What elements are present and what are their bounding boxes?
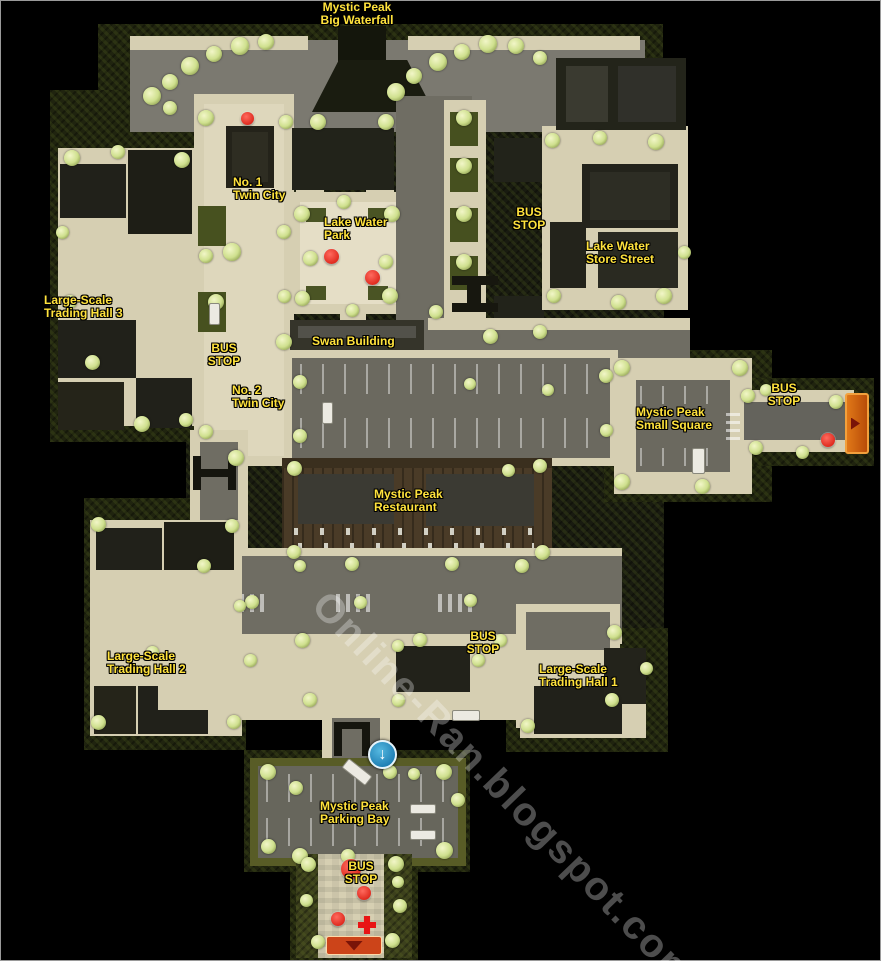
tree	[533, 325, 547, 339]
tree	[56, 226, 69, 239]
label-no2-twin-city: No. 2 Twin City	[232, 384, 284, 410]
tree	[732, 360, 748, 376]
tree	[502, 464, 515, 477]
portal-down-arrow-icon: ↓	[368, 740, 397, 769]
tree	[451, 793, 465, 807]
tree	[385, 933, 400, 948]
tree	[545, 133, 560, 148]
tree	[408, 768, 420, 780]
vehicle	[322, 402, 333, 424]
label-small-square: Mystic Peak Small Square	[636, 406, 712, 432]
tree	[429, 53, 447, 71]
tree	[295, 633, 310, 648]
label-bus-stop-center: BUS STOP	[467, 630, 499, 656]
tree	[605, 693, 619, 707]
tree	[392, 640, 404, 652]
vehicle	[692, 448, 705, 474]
label-big-waterfall: Mystic Peak Big Waterfall	[321, 1, 394, 27]
tree	[392, 694, 405, 707]
map-marker-dot	[241, 112, 254, 125]
label-trading-hall-1: Large-Scale Trading Hall 1	[539, 663, 618, 689]
portal-south	[326, 936, 382, 955]
tree	[295, 291, 310, 306]
tree	[378, 114, 394, 130]
tree	[294, 560, 306, 572]
tree	[197, 559, 211, 573]
tree	[392, 876, 404, 888]
tree	[464, 378, 476, 390]
label-bus-stop-right: BUS STOP	[768, 382, 800, 408]
tree	[337, 195, 351, 209]
tree	[231, 37, 249, 55]
hall3-bldg-1	[60, 164, 126, 218]
portal-east	[845, 393, 869, 454]
tree	[741, 389, 755, 403]
tree	[600, 424, 613, 437]
label-lake-water-store-street: Lake Water Store Street	[586, 240, 654, 266]
tree	[293, 429, 307, 443]
label-parking-bay: Mystic Peak Parking Bay	[320, 800, 389, 826]
tree	[163, 101, 177, 115]
label-swan-building: Swan Building	[312, 335, 395, 348]
tree	[206, 46, 222, 62]
tree	[678, 246, 691, 259]
tree	[311, 935, 325, 949]
vehicle	[410, 804, 436, 814]
tree	[225, 519, 239, 533]
store-bldg-top-roof2	[618, 66, 676, 122]
tree	[287, 461, 302, 476]
tree	[64, 150, 80, 166]
tree	[300, 894, 313, 907]
tree	[303, 693, 317, 707]
vehicle	[410, 830, 436, 840]
map-marker-dot	[357, 886, 371, 900]
tree	[277, 225, 291, 239]
tree	[91, 715, 106, 730]
map-marker-dot	[365, 270, 380, 285]
tree	[533, 51, 547, 65]
tree	[379, 255, 393, 269]
tree	[388, 856, 404, 872]
tree	[260, 764, 276, 780]
label-trading-hall-3: Large-Scale Trading Hall 3	[44, 294, 123, 320]
tree	[749, 441, 763, 455]
tree	[310, 114, 326, 130]
planter-left-1	[198, 206, 226, 246]
tree	[515, 559, 529, 573]
label-restaurant: Mystic Peak Restaurant	[374, 488, 443, 514]
tree	[228, 450, 244, 466]
swan-stalls-1	[300, 364, 600, 394]
tree	[829, 395, 843, 409]
tree	[294, 206, 310, 222]
tree	[456, 110, 472, 126]
square-stalls-2	[640, 448, 726, 466]
tree	[278, 290, 291, 303]
tree	[547, 289, 561, 303]
tree	[521, 719, 535, 733]
bridge-stem	[467, 280, 481, 308]
tree	[406, 68, 422, 84]
tree	[454, 44, 470, 60]
tree	[245, 595, 259, 609]
tree	[134, 416, 150, 432]
square-stalls-1	[640, 386, 726, 404]
swan-stalls-2	[300, 418, 600, 448]
tree	[429, 305, 443, 319]
tree	[303, 251, 318, 266]
vehicle	[209, 303, 220, 325]
tree	[354, 596, 367, 609]
tree	[607, 625, 622, 640]
label-bus-stop-top: BUS STOP	[513, 206, 545, 232]
tree	[143, 87, 161, 105]
tree	[456, 254, 472, 270]
tree	[387, 83, 405, 101]
portal-east-triangle	[851, 418, 860, 430]
tree	[174, 152, 190, 168]
tree	[599, 369, 613, 383]
tree	[796, 446, 809, 459]
tree	[464, 594, 477, 607]
block-dark-1	[292, 128, 394, 190]
tree	[614, 360, 630, 376]
tree	[181, 57, 199, 75]
hall3-bldg-3	[58, 320, 136, 378]
tree	[456, 158, 472, 174]
tree	[199, 425, 213, 439]
tree	[293, 375, 307, 389]
game-map: Online-Ran.blogspot.com ↓Mystic Peak Big…	[0, 0, 881, 961]
tree	[223, 243, 241, 261]
label-bus-stop-left: BUS STOP	[208, 342, 240, 368]
tree	[279, 115, 293, 129]
tree	[382, 288, 398, 304]
square-crosswalk	[726, 408, 740, 440]
label-no1-twin-city: No. 1 Twin City	[233, 176, 285, 202]
tree	[261, 839, 276, 854]
label-bus-stop-bottom: BUS STOP	[345, 860, 377, 886]
hall2-bldg-1	[96, 528, 162, 570]
tree	[695, 479, 710, 494]
portal-south-triangle	[345, 941, 363, 951]
tree	[287, 545, 301, 559]
vehicle	[452, 710, 480, 721]
tree	[611, 295, 626, 310]
tree	[393, 899, 407, 913]
tree	[276, 334, 292, 350]
tree	[346, 304, 359, 317]
tree	[648, 134, 664, 150]
tree	[345, 557, 359, 571]
tree	[179, 413, 193, 427]
tree	[593, 131, 607, 145]
tree	[91, 517, 106, 532]
restaurant-tables-1	[294, 528, 538, 535]
map-marker-dot	[821, 433, 835, 447]
tree	[413, 633, 427, 647]
tree	[445, 557, 459, 571]
tree	[508, 38, 524, 54]
top-plaza-edge-right	[408, 36, 640, 50]
tree	[483, 329, 498, 344]
tree	[533, 459, 547, 473]
tree	[234, 600, 246, 612]
label-trading-hall-2: Large-Scale Trading Hall 2	[107, 650, 186, 676]
tree	[614, 474, 630, 490]
tree	[244, 654, 257, 667]
store-bldg-1-roof	[590, 172, 670, 220]
tree	[456, 206, 472, 222]
tree	[656, 288, 672, 304]
tree	[162, 74, 178, 90]
tree	[289, 781, 303, 795]
tree	[111, 145, 125, 159]
store-bldg-top-roof1	[566, 66, 608, 122]
tree	[301, 857, 316, 872]
tree	[198, 110, 214, 126]
label-lake-water-park: Lake Water Park	[324, 216, 388, 242]
tree	[479, 35, 497, 53]
tree	[199, 249, 213, 263]
tree	[85, 355, 100, 370]
block-dark-2	[494, 138, 546, 182]
tree	[535, 545, 550, 560]
tree	[436, 764, 452, 780]
south-building	[396, 646, 470, 692]
hall3-bldg-4	[58, 382, 124, 430]
map-marker-dot	[324, 249, 339, 264]
store-bldg-2	[550, 222, 586, 288]
parking-gate-bar	[334, 722, 370, 729]
bridge2-crossbar	[193, 469, 236, 477]
tree	[542, 384, 554, 396]
tree	[227, 715, 241, 729]
tree	[436, 842, 453, 859]
map-marker-dot	[331, 912, 345, 926]
tree	[258, 34, 274, 50]
tree	[640, 662, 653, 675]
